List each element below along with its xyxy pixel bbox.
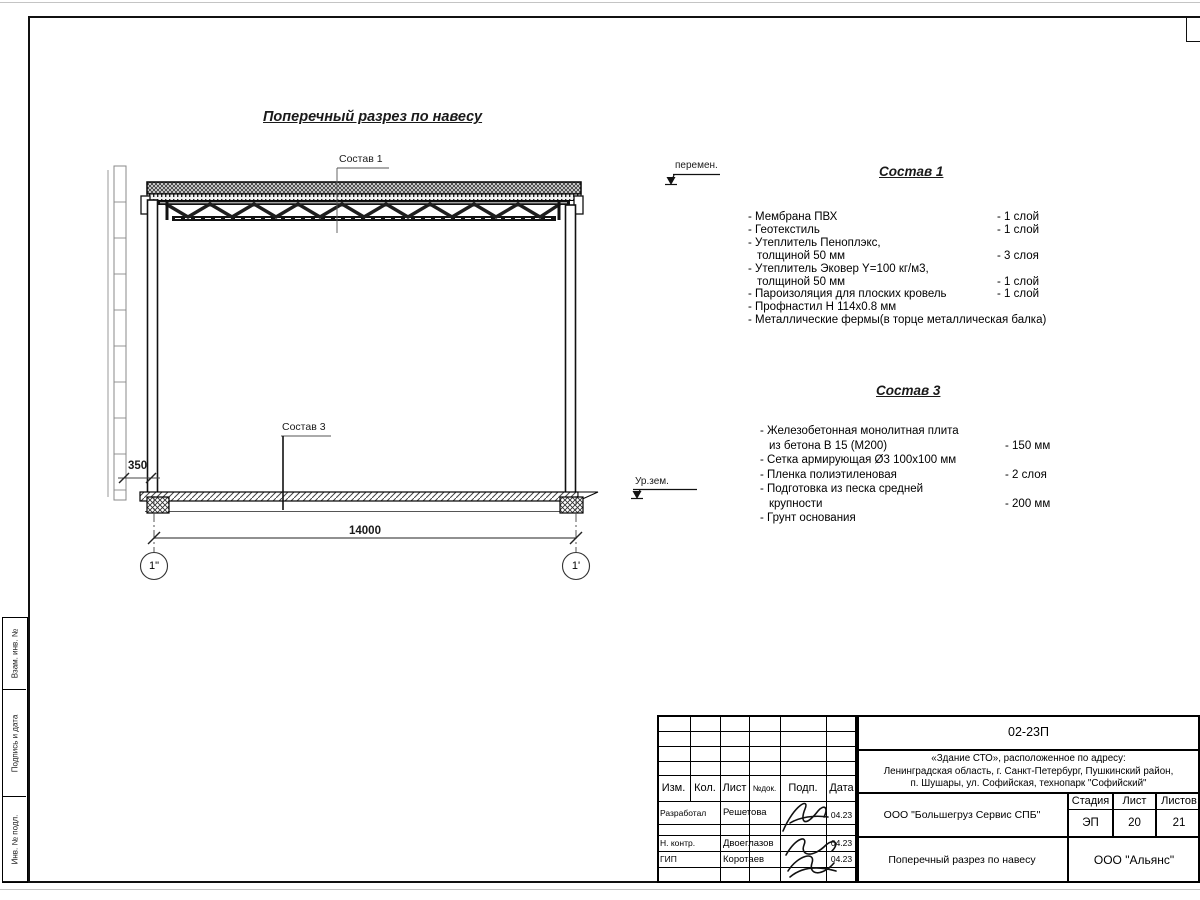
sheet-value: 20 [1113, 809, 1156, 836]
spec-value: - 1 слой [997, 224, 1039, 237]
spec-value: - 150 мм [1005, 439, 1050, 454]
drawing-title: Поперечный разрез по навесу [263, 109, 482, 125]
spec-item: толщиной 50 мм [757, 276, 845, 288]
dim-350: 350 [128, 460, 147, 472]
sostav3-title: Состав 3 [876, 383, 940, 398]
spec-item: - Геотекстиль [748, 224, 820, 236]
spec-item: - Утеплитель Эковер Y=100 кг/м3, [748, 263, 929, 275]
spec-item: - Пароизоляция для плоских кровель [748, 288, 947, 300]
spec-value: - 200 мм [1005, 497, 1050, 512]
spec-item: крупности [769, 498, 822, 510]
spec-item: - Утеплитель Пеноплэкс, [748, 237, 881, 249]
callout-sostav1: Состав 1 [339, 153, 383, 165]
label-ground-level: Ур.зем. [635, 476, 669, 487]
spec-item: - Пленка полиэтиленовая [760, 469, 897, 481]
address-line: п. Шушары, ул. Софийская, технопарк "Соф… [859, 778, 1198, 791]
row-name: Двоеглазов [723, 835, 779, 851]
col-izm: Изм. [657, 775, 690, 801]
spec-item: толщиной 50 мм [757, 250, 845, 262]
company: ООО "Большегруз Сервис СПБ" [857, 793, 1067, 836]
spec-item: из бетона В 15 (М200) [769, 440, 887, 452]
spec-item: - Железобетонная монолитная плита [760, 425, 959, 437]
signature-control-gip [782, 833, 844, 883]
address-line: Ленинградская область, г. Санкт-Петербур… [859, 766, 1198, 779]
spec-item: - Металлические фермы(в торце металличес… [748, 314, 1046, 326]
sheets-label: Листов [1156, 792, 1200, 809]
doc-code: 02-23П [857, 715, 1200, 749]
label-variable: перемен. [675, 160, 718, 171]
row-role: Н. контр. [660, 835, 720, 851]
col-list: Лист [720, 775, 749, 801]
spec-value: - 1 слой [997, 276, 1039, 289]
row-name: Коротаев [723, 851, 779, 867]
spec-item: - Подготовка из песка средней [760, 483, 923, 495]
axis-bubble-right: 1' [561, 560, 591, 572]
row-name: Решетова [723, 801, 779, 824]
spec-item: - Грунт основания [760, 512, 856, 524]
sheet-label: Лист [1113, 792, 1156, 809]
sostav1-list: - Мембрана ПВХ- 1 слой - Геотекстиль- 1 … [748, 211, 1046, 327]
sheets-value: 21 [1156, 809, 1200, 836]
row-role: Разработал [660, 801, 720, 824]
spec-value: - 3 слоя [997, 250, 1039, 263]
stage-value: ЭП [1068, 809, 1113, 836]
spec-value: - 1 слой [997, 288, 1039, 301]
address-line: «Здание СТО», расположенное по адресу: [859, 753, 1198, 766]
drawing-sheet: Взам. инв. № Подпись и дата Инв. № подл. [0, 0, 1200, 900]
sheet-title: Поперечный разрез по навесу [857, 836, 1067, 883]
org: ООО "Альянс" [1068, 836, 1200, 883]
axis-bubble-left: 1" [139, 560, 169, 572]
spec-value: - 2 слоя [1005, 468, 1047, 483]
object-address: «Здание СТО», расположенное по адресу: Л… [859, 753, 1198, 791]
callout-sostav3: Состав 3 [282, 421, 326, 433]
spec-value: - 1 слой [997, 211, 1039, 224]
title-block: Изм. Кол. Лист №док. Подп. Дата Разработ… [657, 715, 1200, 883]
spec-item: - Профнастил Н 114х0.8 мм [748, 301, 896, 313]
row-role: ГИП [660, 851, 720, 867]
spec-item: - Сетка армирующая Ø3 100х100 мм [760, 454, 956, 466]
signature-developer [780, 795, 832, 837]
col-kol: Кол. [690, 775, 720, 801]
spec-item: - Мембрана ПВХ [748, 211, 837, 223]
col-ndok: №док. [749, 775, 780, 801]
sostav3-list: - Железобетонная монолитная плита из бет… [760, 424, 959, 526]
dim-14000: 14000 [335, 525, 395, 537]
stage-label: Стадия [1068, 792, 1113, 809]
sostav1-title: Состав 1 [879, 164, 943, 179]
